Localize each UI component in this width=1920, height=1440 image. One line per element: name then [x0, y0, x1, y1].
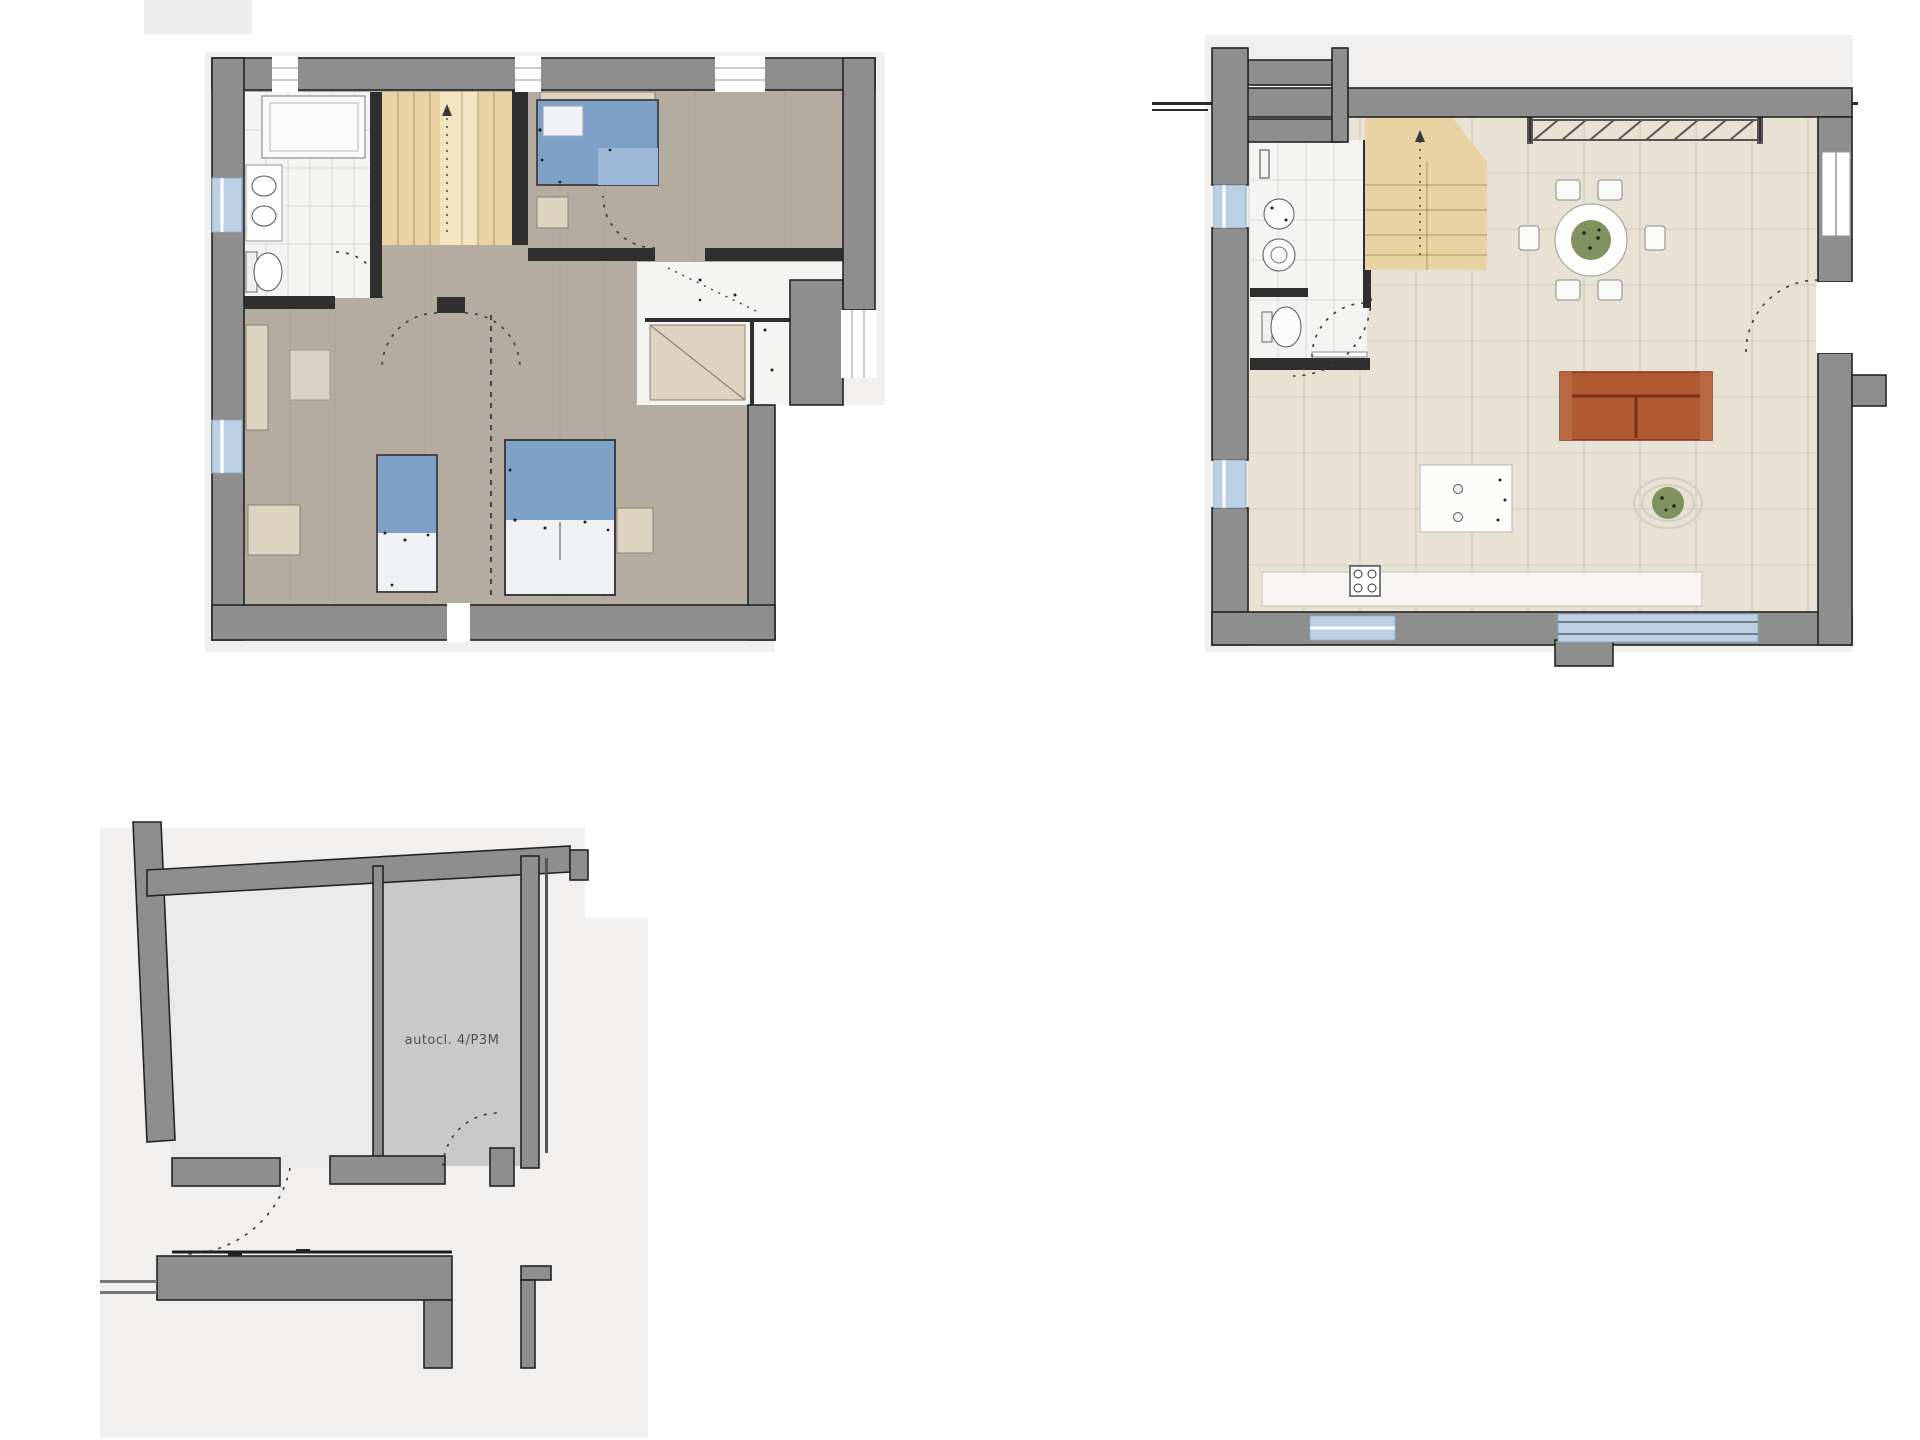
gate-line	[100, 1280, 157, 1283]
chair	[1598, 280, 1622, 300]
gate-line	[100, 1291, 157, 1294]
toilet-icon	[1271, 307, 1301, 347]
page-corner-block	[144, 0, 252, 34]
bed-single-left	[377, 455, 437, 592]
bed-double-bottom	[505, 440, 615, 595]
outside-area	[585, 828, 648, 918]
plant-icon	[1571, 220, 1611, 260]
door-leaf-tick	[296, 1249, 310, 1253]
section-line-tick	[1152, 109, 1208, 111]
staircase	[1365, 117, 1487, 270]
outside-area	[775, 405, 885, 652]
stove-icon	[1350, 566, 1380, 596]
chair	[1556, 280, 1580, 300]
sink-icon	[1454, 513, 1463, 522]
sink-icon	[1263, 239, 1295, 271]
bathroom	[244, 92, 382, 298]
door-right	[841, 310, 877, 378]
basement-plan: autocl. 4/P3M	[100, 822, 648, 1438]
chair	[1598, 180, 1622, 200]
toilet-icon	[254, 253, 282, 291]
room-label: autocl. 4/P3M	[405, 1033, 500, 1048]
storage-room	[160, 868, 375, 1168]
sink-icon	[1264, 199, 1294, 229]
ground-floor-plan	[1152, 35, 1886, 666]
door-leaf	[1312, 352, 1367, 357]
chair	[1519, 226, 1539, 250]
pillow	[543, 106, 583, 136]
closet	[246, 325, 268, 430]
dresser	[617, 508, 653, 553]
chair	[1645, 226, 1665, 250]
wall-line	[545, 858, 548, 1153]
sofa	[1560, 372, 1712, 440]
chair	[1556, 180, 1580, 200]
kitchen-island	[1420, 465, 1512, 532]
door-leaf-tick	[228, 1252, 242, 1256]
wc-room	[1250, 140, 1371, 376]
nightstand	[537, 197, 568, 228]
bathtub	[262, 96, 365, 158]
staircase	[382, 92, 512, 245]
plant-icon	[1652, 487, 1684, 519]
sink-icon	[1454, 485, 1463, 494]
autoclave-room	[382, 858, 523, 1166]
sink-icon	[252, 206, 276, 226]
door-right	[1816, 282, 1854, 353]
cabinet	[290, 350, 330, 400]
sink-icon	[252, 176, 276, 196]
upper-floor-plan	[205, 52, 885, 652]
bed-double-top	[537, 92, 658, 185]
door-bottom	[447, 603, 470, 642]
kitchen-counter	[1262, 572, 1702, 606]
dresser	[248, 505, 300, 555]
floor-plan-sheet: autocl. 4/P3M	[0, 0, 1920, 1440]
